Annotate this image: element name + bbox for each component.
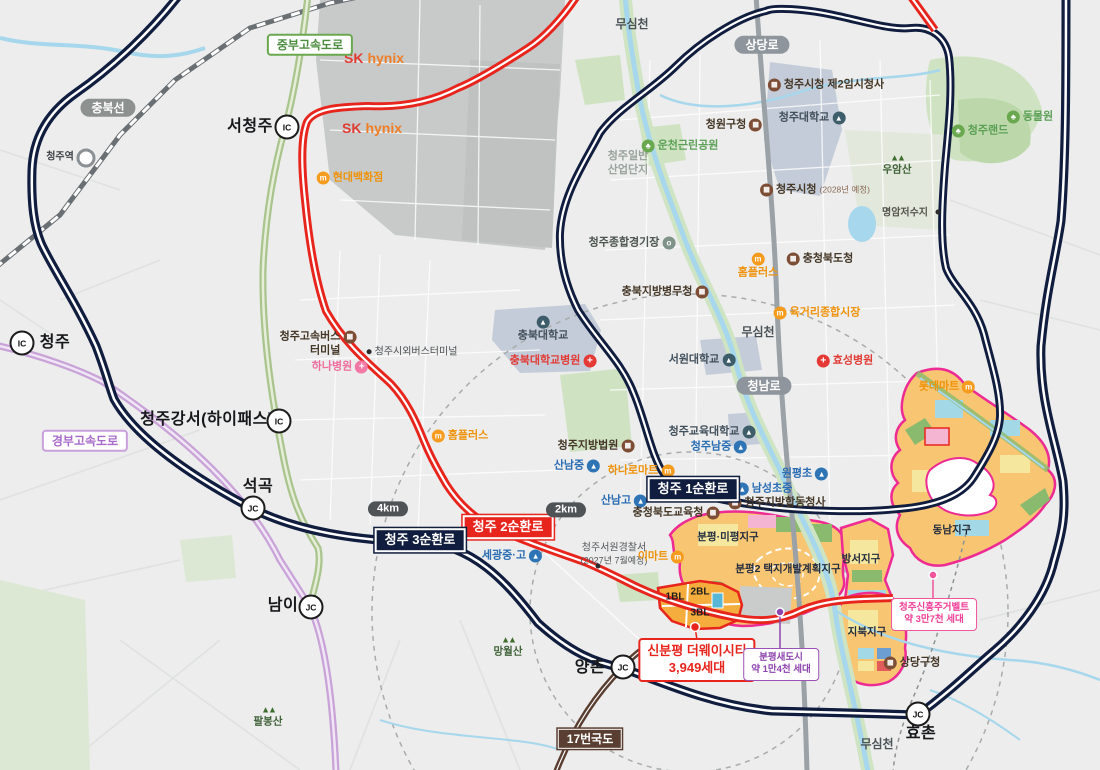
hyundai-dept-label: 현대백화점 [317, 172, 384, 185]
cityhall-note: (2028년 예정) [820, 185, 870, 195]
cheongju-ic-icon: IC [10, 331, 35, 356]
joint-gov-text: 청주지방합동청사 [745, 497, 826, 510]
segwang-school-label: 세광중·고 [482, 550, 542, 563]
emart-text: 이마트 [638, 551, 668, 564]
radius-4km-badge: 4km [368, 501, 408, 516]
hyosung-text: 효성병원 [833, 355, 873, 368]
edu-univ-label: 청주교육대학교 [669, 426, 756, 439]
mart-icon [751, 253, 764, 266]
park-icon [642, 140, 655, 153]
zoo-icon [1007, 111, 1020, 124]
hyochon-jc-label: 효촌 [906, 725, 936, 743]
palbongsan-label: 팔봉산 [254, 704, 283, 727]
department-store-icon [317, 172, 330, 185]
mangwolsan-label: 망월산 [494, 634, 523, 657]
sk-hynix-label-1: SK hynix [344, 50, 404, 66]
cbnu-hospital-label: 충북대학교병원 [510, 355, 597, 368]
gangseo-ic-icon: IC [267, 409, 292, 434]
seocheongju-ic-label: 서청주 [227, 118, 273, 136]
sk-logo-text: SK [342, 120, 361, 136]
police-text: 청주서원경찰서 [582, 543, 646, 555]
stadium-icon [662, 237, 675, 250]
block2-label: 2BL [691, 587, 710, 598]
stadium-label: 청주종합경기장 [589, 237, 676, 250]
myeongam-reservoir-water [848, 206, 876, 242]
homeplus-west-text: 홈플러스 [448, 430, 488, 443]
cheongju-land-text: 청주랜드 [968, 125, 1008, 138]
homeplus-east-text: 홈플러스 [738, 267, 778, 280]
lotte-mart-label: 롯데마트 [919, 381, 975, 394]
dongnam-district-label: 동남지구 [933, 524, 972, 536]
sangdang-ro-badge: 상당로 [734, 36, 789, 54]
bunpyeong-mipyeong-district-label: 분평·미평지구 [697, 531, 758, 543]
government-icon [749, 119, 762, 132]
block1-label: 1BL [666, 592, 685, 603]
zoo-text: 동물원 [1023, 111, 1053, 124]
cheongju-ringroad-map: 중부고속도로 경부고속도로 충북선 상당로 청남로 청주 1순환로 청주 2순환… [0, 0, 1100, 770]
cheongju-station-icon [77, 149, 96, 168]
uncheon-park-text: 운천근린공원 [658, 140, 719, 153]
hanaro-mart-text: 하나로마트 [608, 465, 659, 478]
amusement-park-icon [952, 125, 965, 138]
hyundai-text: 현대백화점 [333, 172, 384, 185]
homeplus-east-label: 홈플러스 [738, 253, 778, 280]
express-terminal-line1: 청주고속버스 [280, 331, 341, 344]
express-terminal-row: 청주고속버스 [280, 331, 357, 344]
hyosung-hospital-label: 효성병원 [817, 355, 873, 368]
theway-units: 3,949세대 [647, 660, 746, 677]
belt-callout: 청주신흥주거벨트 약 3만7천 세대 [891, 598, 977, 631]
mountain-icon [890, 152, 904, 162]
yukgeori-text: 육거리종합시장 [790, 307, 861, 320]
block3-label: 3BL [691, 608, 710, 619]
newtown-units: 약 1만4천 세대 [751, 664, 811, 676]
dot-marker-icon [367, 350, 372, 355]
provhall-label: 충청북도청 [787, 253, 854, 266]
mart-icon [432, 430, 445, 443]
district-court-text: 청주지방법원 [558, 440, 619, 453]
university-icon [536, 316, 549, 329]
government-icon [884, 657, 897, 670]
namseong-text: 남성초중 [752, 483, 792, 496]
nam-middle-label: 청주남중 [691, 441, 747, 454]
mart-icon [962, 381, 975, 394]
mountain-icon [261, 704, 275, 714]
mart-icon [671, 551, 684, 564]
uncheon-park-label: 운천근린공원 [642, 140, 719, 153]
ring1-badge: 청주 1순환로 [648, 477, 739, 501]
cityhall-text: 청주시청 [776, 184, 816, 197]
hanaro-mart-label: 하나로마트 [608, 465, 675, 478]
ring2-badge: 청주 2순환로 [463, 515, 554, 539]
district-court-label: 청주지방법원 [558, 440, 635, 453]
musimcheon-label-top: 무심천 [615, 18, 648, 32]
government-icon [768, 79, 781, 92]
cheongju-ic-label: 청주 [40, 334, 70, 352]
wonpyeong-elem-label: 원평초 [782, 468, 828, 481]
hana-hospital-text: 하나병원 [312, 361, 352, 374]
provhall-text: 충청북도청 [803, 253, 854, 266]
newtown-callout: 분평새도시 약 1만4천 세대 [743, 648, 819, 681]
express-terminal-label: 청주고속버스 터미널 [280, 331, 357, 358]
bangseo-district-label: 방서지구 [842, 553, 881, 565]
sk-hynix-label-2: SK hynix [342, 120, 402, 136]
hana-hospital-label: 하나병원 [312, 361, 368, 374]
university-icon [832, 112, 845, 125]
cheongwon-gu-text: 청원구청 [706, 119, 746, 132]
industrial-line2: 산업단지 [608, 164, 648, 177]
segwang-text: 세광중·고 [482, 550, 526, 563]
government-icon [621, 440, 634, 453]
gyeongbu-expressway-badge: 경부고속도로 [42, 430, 128, 452]
hynix-logo-text: hynix [365, 120, 402, 136]
hyochon-jc-icon: JC [906, 702, 931, 727]
express-terminal-line2: 터미널 [310, 345, 340, 358]
chungbuk-line-badge: 충북선 [80, 99, 135, 117]
government-icon [706, 507, 719, 520]
myeongam-label: 명암저수지 [882, 207, 928, 219]
lotte-mart-text: 롯데마트 [919, 381, 959, 394]
belt-units: 약 3만7천 세대 [899, 614, 969, 626]
cheongnam-ro-badge: 청남로 [736, 377, 791, 395]
sannam-middle-text: 산남중 [554, 460, 584, 473]
cityhall2-text: 청주시청 제2임시청사 [784, 79, 884, 92]
stadium-text: 청주종합경기장 [589, 237, 660, 250]
jungbu-expressway-badge: 중부고속도로 [267, 34, 353, 56]
mangwolsan-text: 망월산 [494, 646, 523, 658]
edu-office-label: 충청북도교육청 [633, 507, 720, 520]
mart-icon [661, 465, 674, 478]
seokgok-jc-icon: JC [241, 496, 266, 521]
cbnu-hospital-text: 충북대학교병원 [510, 355, 581, 368]
gangseo-ic-label: 청주강서(하이패스) [140, 411, 273, 429]
yangchon-jc-label: 양촌 [575, 659, 605, 677]
musimcheon-label-mid: 무심천 [741, 326, 774, 340]
bunpyeong2-district-label: 분평2 택지개발계획지구 [735, 563, 840, 575]
school-icon [529, 550, 542, 563]
cheongwon-gu-label: 청원구청 [706, 119, 762, 132]
sannam-high-text: 산남고 [601, 495, 631, 508]
joint-gov-label: 청주지방합동청사 [729, 497, 826, 510]
bus-terminal-icon [343, 331, 356, 344]
ring3-badge: 청주 3순환로 [375, 528, 466, 552]
government-icon [787, 253, 800, 266]
theway-title: 신분평 더웨이시티 [647, 643, 746, 660]
wonpyeong-text: 원평초 [782, 468, 812, 481]
cheongju-land-label: 청주랜드 [952, 125, 1008, 138]
mma-text: 충북지방병무청 [622, 286, 693, 299]
uamsan-label: 우암산 [883, 152, 912, 175]
uamsan-text: 우암산 [883, 164, 912, 176]
sangdang-gu-label: 상당구청 [884, 657, 940, 670]
school-icon [815, 468, 828, 481]
palbongsan-text: 팔봉산 [254, 716, 283, 728]
university-icon [742, 426, 755, 439]
yangchon-jc-icon: JC [611, 655, 636, 680]
cityhall-label: 청주시청 (2028년 예정) [760, 184, 870, 197]
radius-2km-badge: 2km [546, 502, 586, 517]
cityhall2-label: 청주시청 제2임시청사 [768, 79, 884, 92]
musimcheon-label-bottom: 무심천 [860, 738, 893, 752]
mountain-icon [501, 634, 515, 644]
jibuk-district-label: 지북지구 [848, 626, 887, 638]
nami-jc-icon: JC [299, 595, 324, 620]
seocheongju-ic-icon: IC [275, 115, 300, 140]
sannam-middle-label: 산남중 [554, 460, 600, 473]
homeplus-west-label: 홈플러스 [432, 430, 488, 443]
market-icon [774, 307, 787, 320]
seowon-univ-text: 서원대학교 [669, 354, 720, 367]
route17-badge: 17번국도 [558, 729, 622, 749]
intercity-terminal-text: 청주시외버스터미널 [375, 346, 458, 358]
cheongju-univ-text: 청주대학교 [779, 112, 830, 125]
zoo-label: 동물원 [1007, 111, 1053, 124]
chungbuk-univ-label: 충북대학교 [518, 316, 569, 343]
emart-label: 이마트 [638, 551, 684, 564]
government-icon [760, 184, 773, 197]
chungbuk-univ-text: 충북대학교 [518, 330, 569, 343]
edu-office-text: 충청북도교육청 [633, 507, 704, 520]
government-icon [695, 286, 708, 299]
hospital-icon [355, 361, 368, 374]
seokgok-jc-label: 석곡 [243, 478, 273, 496]
hospital-icon [583, 355, 596, 368]
mma-label: 충북지방병무청 [622, 286, 709, 299]
theway-callout: 신분평 더웨이시티 3,949세대 [638, 638, 755, 682]
yukgeori-market-label: 육거리종합시장 [774, 307, 861, 320]
hospital-icon [817, 355, 830, 368]
edu-univ-text: 청주교육대학교 [669, 426, 740, 439]
cheongju-station-label: 청주역 [46, 151, 74, 163]
sangdang-gu-text: 상당구청 [900, 657, 940, 670]
cheongju-univ-label: 청주대학교 [779, 112, 846, 125]
belt-title: 청주신흥주거벨트 [899, 602, 969, 614]
newtown-title: 분평새도시 [751, 652, 811, 664]
seowon-univ-label: 서원대학교 [669, 354, 736, 367]
nami-jc-label: 남이 [268, 597, 298, 615]
industrial-complex-label: 청주일반 산업단지 [608, 150, 648, 176]
school-icon [587, 460, 600, 473]
namseong-label: 남성초중 [736, 483, 792, 496]
hynix-logo-text: hynix [367, 50, 404, 66]
nam-middle-text: 청주남중 [691, 441, 731, 454]
university-icon [722, 354, 735, 367]
intercity-terminal-label: 청주시외버스터미널 [367, 346, 458, 358]
school-icon [734, 441, 747, 454]
